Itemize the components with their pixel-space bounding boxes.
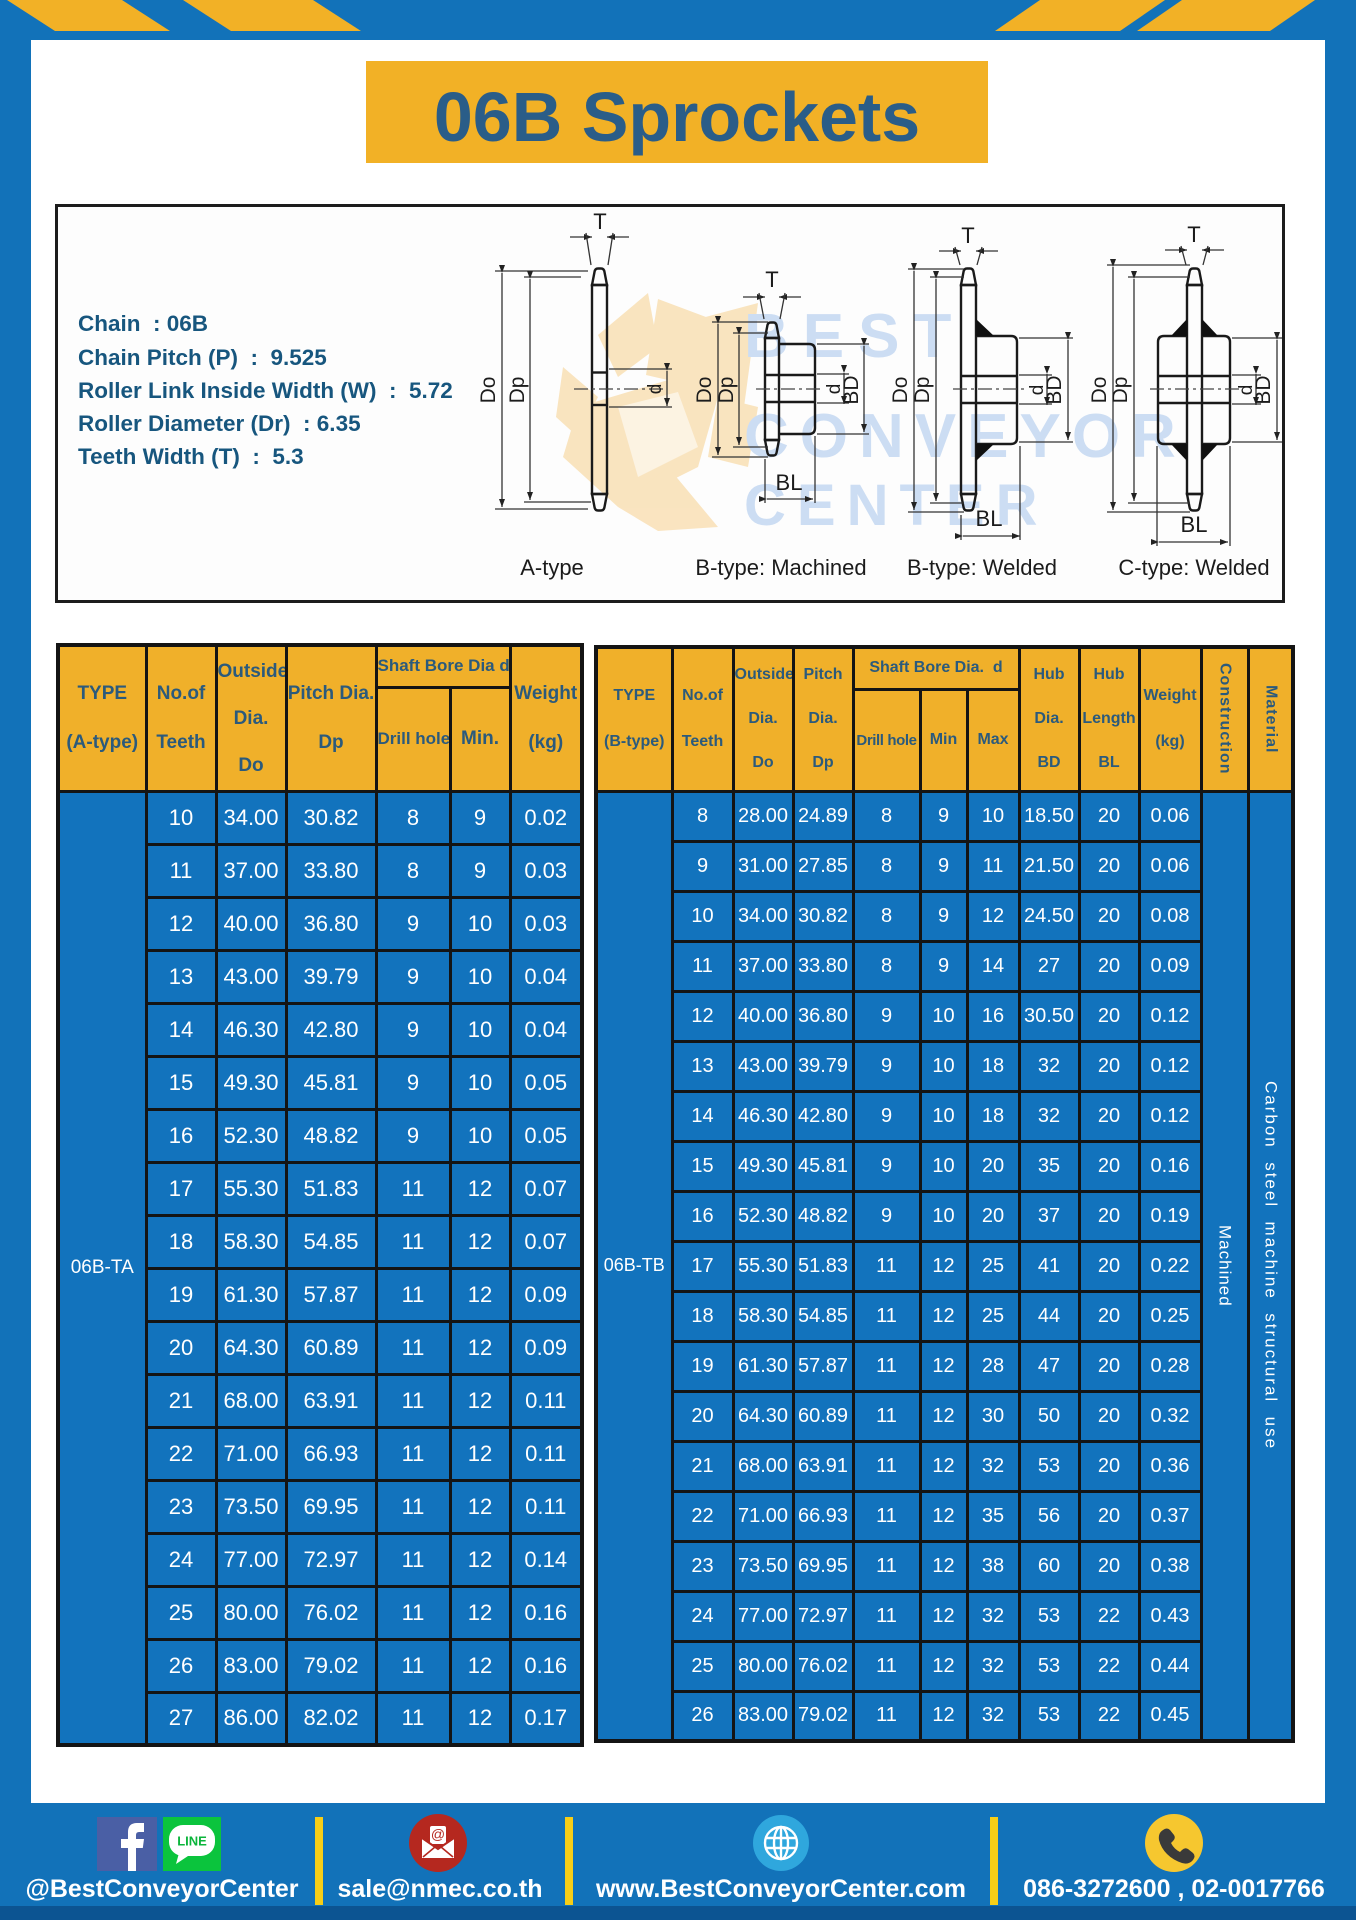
svg-text:BL: BL <box>776 470 803 495</box>
svg-text:CONVEYOR: CONVEYOR <box>744 402 1187 471</box>
svg-text:T: T <box>961 223 974 248</box>
svg-text:Chain Pitch (P) : 9.525: Chain Pitch (P) : 9.525 <box>78 345 327 370</box>
svg-text:BD: BD <box>1252 375 1275 404</box>
svg-text:Chain : 06B: Chain : 06B <box>78 311 208 336</box>
svg-text:Do: Do <box>693 377 716 404</box>
svg-text:C-type: Welded: C-type: Welded <box>1118 555 1269 580</box>
svg-text:BD: BD <box>1043 375 1066 404</box>
svg-text:Do: Do <box>477 377 500 404</box>
svg-text:d: d <box>645 384 666 395</box>
svg-text:@: @ <box>431 1826 445 1842</box>
svg-text:Teeth Width (T) : 5.3: Teeth Width (T) : 5.3 <box>78 444 304 469</box>
svg-text:Dp: Dp <box>506 377 529 404</box>
svg-text:B-type: Machined: B-type: Machined <box>695 555 866 580</box>
svg-text:BL: BL <box>976 506 1003 531</box>
svg-text:B-type: Welded: B-type: Welded <box>907 555 1057 580</box>
svg-text:T: T <box>765 267 778 292</box>
svg-text:Dp: Dp <box>715 377 738 404</box>
svg-text:T: T <box>593 209 606 234</box>
svg-text:Dp: Dp <box>911 377 934 404</box>
svg-text:BD: BD <box>840 375 863 404</box>
svg-text:Roller Diameter (Dr) : 6.35: Roller Diameter (Dr) : 6.35 <box>78 411 361 436</box>
svg-text:T: T <box>1187 222 1200 247</box>
svg-text:Do: Do <box>1088 377 1111 404</box>
svg-text:Dp: Dp <box>1109 377 1132 404</box>
svg-text:Do: Do <box>889 377 912 404</box>
svg-text:LINE: LINE <box>177 1834 207 1849</box>
svg-text:Roller Link Inside Width (W): Roller Link Inside Width (W) : 5.72 <box>78 378 453 403</box>
svg-text:BL: BL <box>1181 512 1208 537</box>
svg-text:BEST: BEST <box>744 302 965 371</box>
svg-text:A-type: A-type <box>520 555 584 580</box>
